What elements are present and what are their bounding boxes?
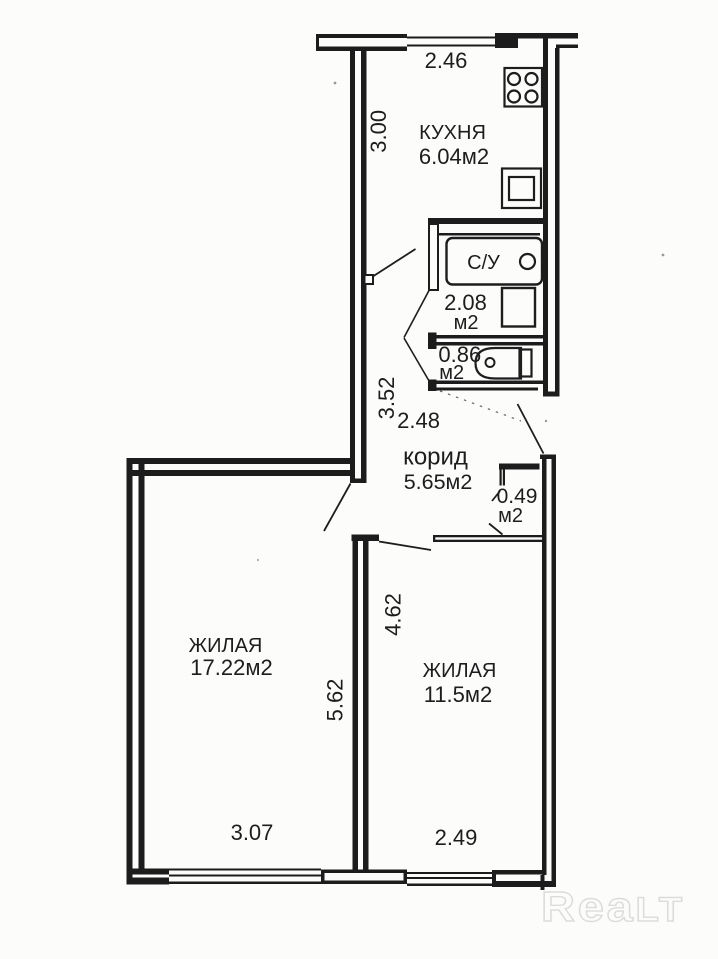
svg-text:2.49: 2.49 bbox=[435, 825, 478, 850]
svg-text:3.07: 3.07 bbox=[231, 820, 274, 845]
svg-text:КУХНЯ: КУХНЯ bbox=[419, 122, 486, 144]
svg-text:корид: корид bbox=[403, 444, 468, 471]
svg-text:ЖИЛАЯ: ЖИЛАЯ bbox=[423, 660, 497, 682]
svg-text:3.00: 3.00 bbox=[366, 110, 391, 153]
svg-text:м2: м2 bbox=[498, 505, 523, 527]
svg-text:ЖИЛАЯ: ЖИЛАЯ bbox=[189, 635, 263, 657]
svg-text:5.62: 5.62 bbox=[323, 679, 348, 722]
svg-text:2.46: 2.46 bbox=[425, 48, 468, 73]
svg-text:3.52: 3.52 bbox=[374, 377, 399, 420]
svg-text:ReaLT: ReaLT bbox=[541, 884, 685, 930]
svg-text:м2: м2 bbox=[439, 362, 464, 384]
svg-text:2.48: 2.48 bbox=[397, 408, 440, 433]
svg-text:17.22м2: 17.22м2 bbox=[190, 655, 272, 680]
svg-text:6.04м2: 6.04м2 bbox=[419, 144, 489, 169]
svg-text:4.62: 4.62 bbox=[381, 593, 406, 636]
svg-text:м2: м2 bbox=[454, 312, 479, 334]
svg-text:С/У: С/У bbox=[467, 252, 500, 274]
svg-text:11.5м2: 11.5м2 bbox=[424, 682, 493, 707]
svg-text:5.65м2: 5.65м2 bbox=[404, 470, 473, 494]
